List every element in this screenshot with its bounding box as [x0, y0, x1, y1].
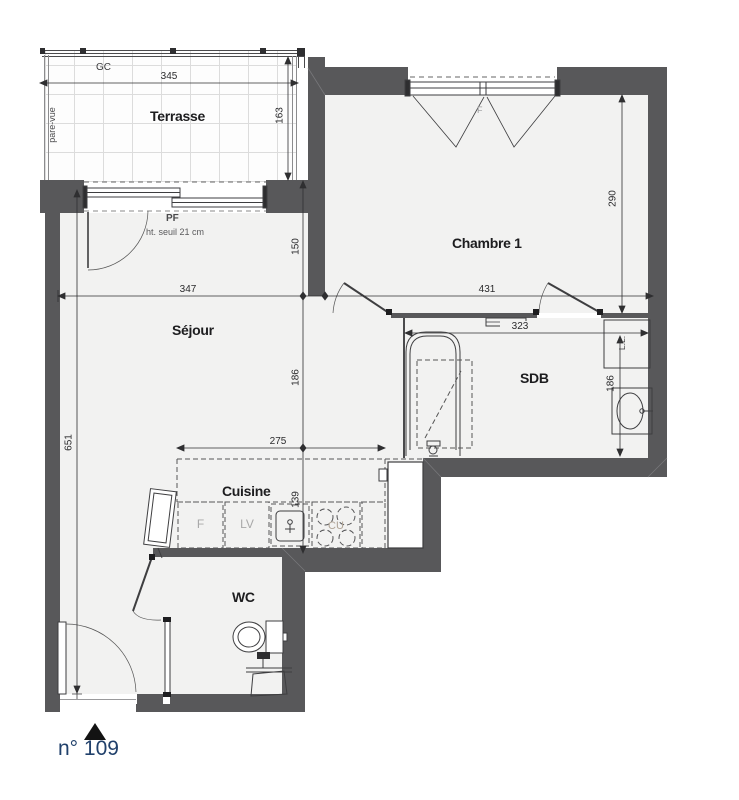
- fridge-label: F: [178, 517, 223, 531]
- pf-label: PF: [166, 214, 179, 224]
- dimension-label-living-height: 186: [291, 358, 302, 398]
- dimension-label-kitchen-width: 275: [258, 436, 298, 447]
- room-label-living: Séjour: [172, 323, 214, 337]
- room-label-kitchen: Cuisine: [222, 484, 270, 498]
- dimension-label-bathroom-width: 323: [500, 321, 540, 332]
- dimension-label-kitchen-depth: 139: [291, 480, 302, 520]
- pare-vue-label: pare-vue: [47, 85, 57, 165]
- dimension-label-terrace-width: 345: [149, 71, 189, 82]
- bedroom-door: [333, 283, 392, 315]
- pf-window: [83, 182, 267, 270]
- plan-linework: [0, 0, 739, 800]
- kitchen-tall-unit: [379, 462, 423, 548]
- room-label-wc: WC: [232, 590, 255, 604]
- bathtub-icon: [406, 332, 472, 456]
- washing-machine-icon: [604, 320, 650, 368]
- room-label-bathroom: SDB: [520, 371, 549, 385]
- hob-label: CU: [312, 520, 360, 532]
- dimension-label-living-width: 347: [168, 284, 208, 295]
- bedroom-window-label: F: [477, 106, 483, 115]
- wc-partition: [163, 617, 171, 697]
- dimension-label-bedroom-depth: 290: [608, 179, 619, 219]
- bathroom-basin-icon: [612, 388, 653, 434]
- radiator-icon: [144, 489, 177, 548]
- radiator-pipe: [158, 548, 162, 558]
- wc-door: [133, 554, 161, 620]
- dimension-label-living-top: 150: [291, 227, 302, 267]
- pf-note-label: ht. seuil 21 cm: [146, 228, 204, 237]
- entrance-door: [58, 622, 136, 699]
- dishwasher-label: LV: [225, 517, 269, 531]
- dimension-label-bathroom-depth: 186: [606, 364, 617, 404]
- room-label-terrace: Terrasse: [150, 109, 205, 123]
- dimension-label-bedroom-width: 431: [467, 284, 507, 295]
- toilet-icon: [233, 621, 287, 653]
- dimension-label-left-height: 651: [64, 423, 75, 463]
- room-label-bedroom: Chambre 1: [452, 236, 522, 250]
- railing-label: GC: [96, 63, 111, 73]
- wc-basin-icon: [246, 652, 292, 696]
- dimension-label-terrace-depth: 163: [275, 96, 286, 136]
- washing-machine-label: L.L.: [617, 303, 627, 383]
- floor-plan: Terrasse Chambre 1 Séjour SDB Cuisine WC…: [0, 0, 739, 800]
- unit-number-label: n° 109: [58, 737, 119, 761]
- dimension-lines: [40, 57, 653, 693]
